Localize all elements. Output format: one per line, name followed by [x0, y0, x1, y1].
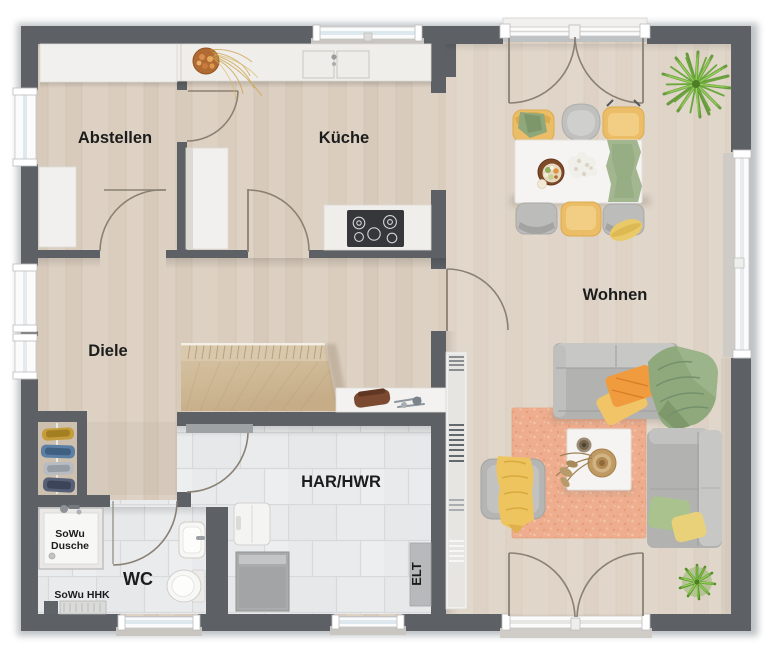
- svg-text:Diele: Diele: [88, 342, 127, 360]
- svg-text:WC: WC: [123, 569, 153, 589]
- svg-text:SoWu: SoWu: [55, 528, 85, 540]
- svg-text:Dusche: Dusche: [51, 540, 89, 552]
- svg-text:Abstellen: Abstellen: [78, 129, 152, 147]
- svg-text:HAR/HWR: HAR/HWR: [301, 473, 381, 491]
- svg-text:Wohnen: Wohnen: [583, 286, 648, 304]
- svg-text:SoWu HHK: SoWu HHK: [54, 589, 110, 601]
- svg-text:ELT: ELT: [409, 562, 424, 586]
- svg-text:Küche: Küche: [319, 129, 369, 147]
